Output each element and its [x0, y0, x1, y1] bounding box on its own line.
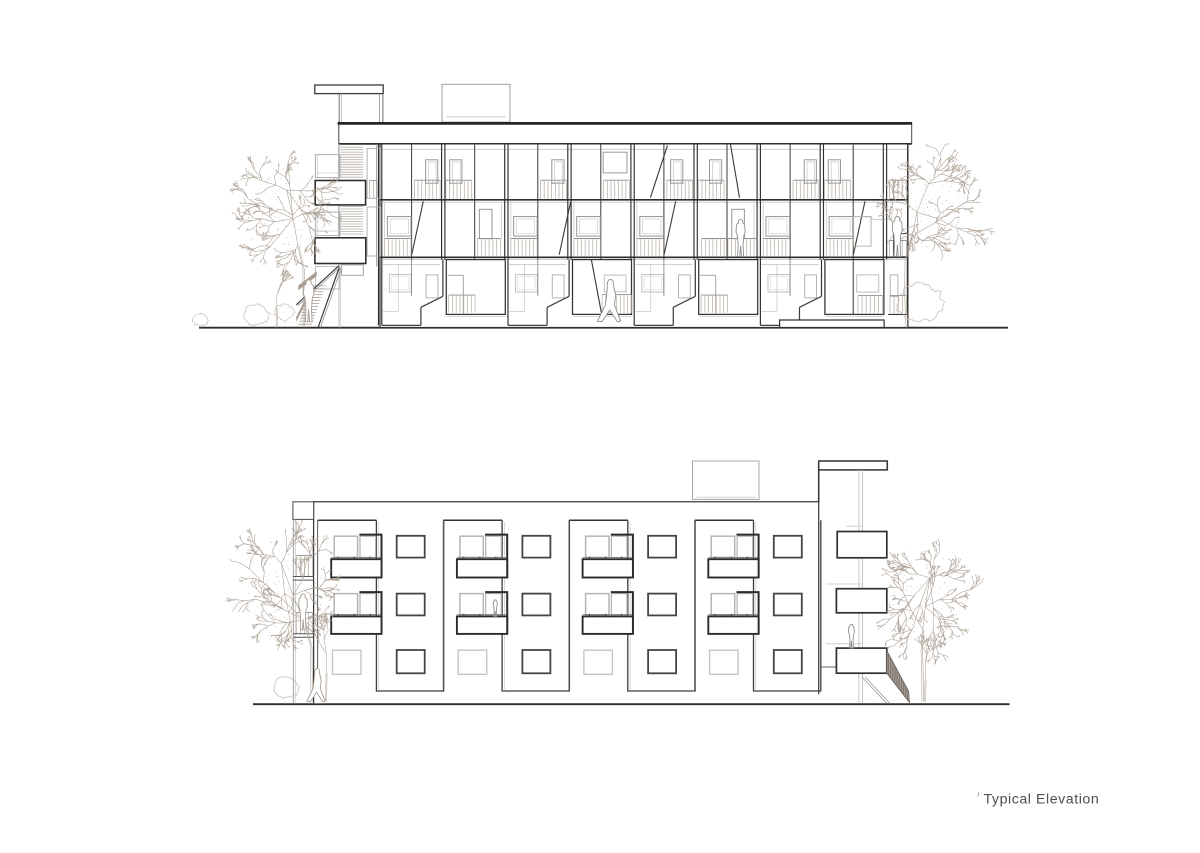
svg-text:Typical Elevation: Typical Elevation — [984, 792, 1100, 808]
